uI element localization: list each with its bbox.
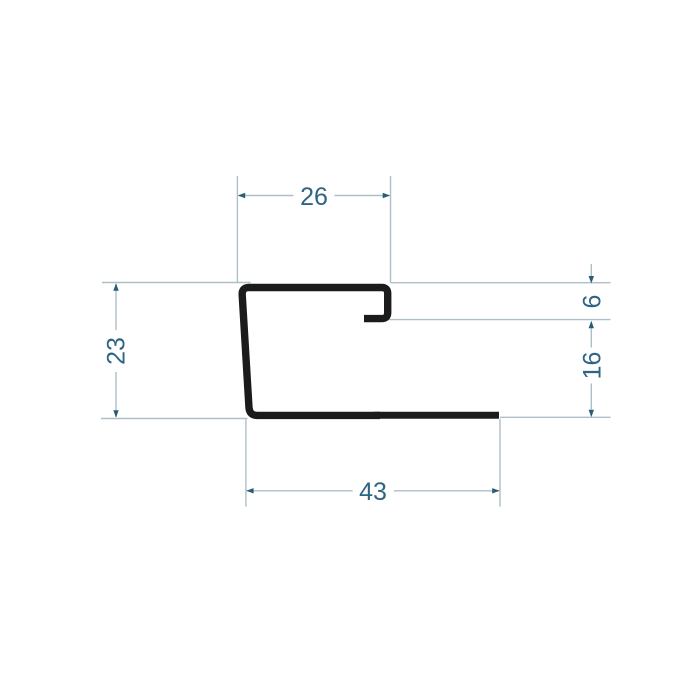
- svg-text:16: 16: [579, 352, 607, 380]
- svg-text:6: 6: [579, 295, 607, 309]
- svg-text:43: 43: [359, 478, 387, 506]
- svg-text:26: 26: [300, 183, 328, 211]
- svg-text:23: 23: [103, 337, 131, 365]
